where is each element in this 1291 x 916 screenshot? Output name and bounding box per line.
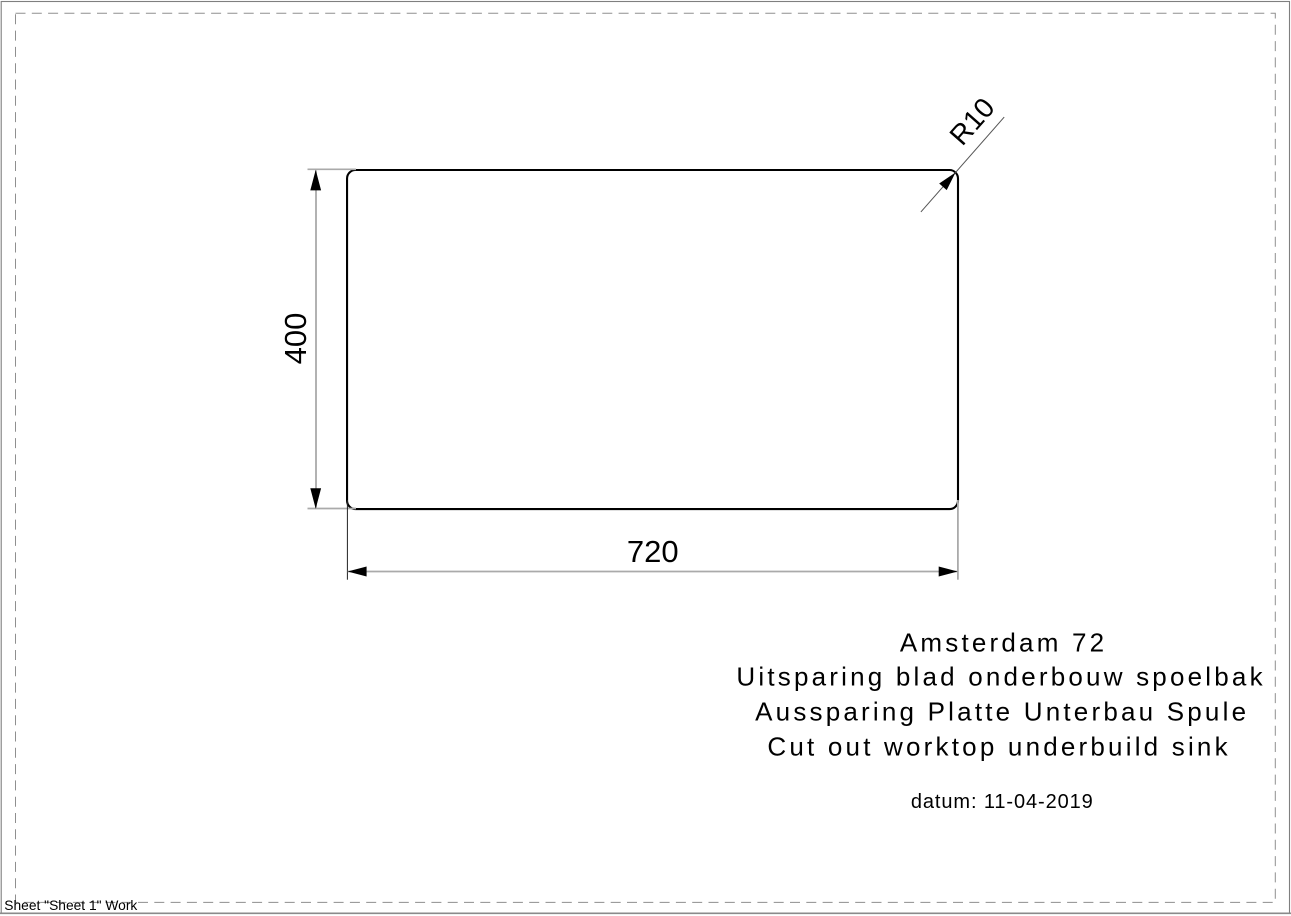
svg-text:720: 720 <box>627 534 679 569</box>
svg-text:datum: 11-04-2019: datum: 11-04-2019 <box>911 791 1094 813</box>
svg-text:400: 400 <box>278 313 313 365</box>
svg-text:Uitsparing blad onderbouw spoe: Uitsparing blad onderbouw spoelbak <box>736 662 1265 692</box>
svg-text:Sheet "Sheet 1" Work: Sheet "Sheet 1" Work <box>4 898 137 913</box>
svg-text:Cut out worktop underbuild sin: Cut out worktop underbuild sink <box>767 732 1230 762</box>
svg-text:R10: R10 <box>943 92 1000 151</box>
svg-text:Amsterdam 72: Amsterdam 72 <box>900 627 1107 657</box>
svg-text:Aussparing Platte Unterbau Spu: Aussparing Platte Unterbau Spule <box>755 697 1249 727</box>
